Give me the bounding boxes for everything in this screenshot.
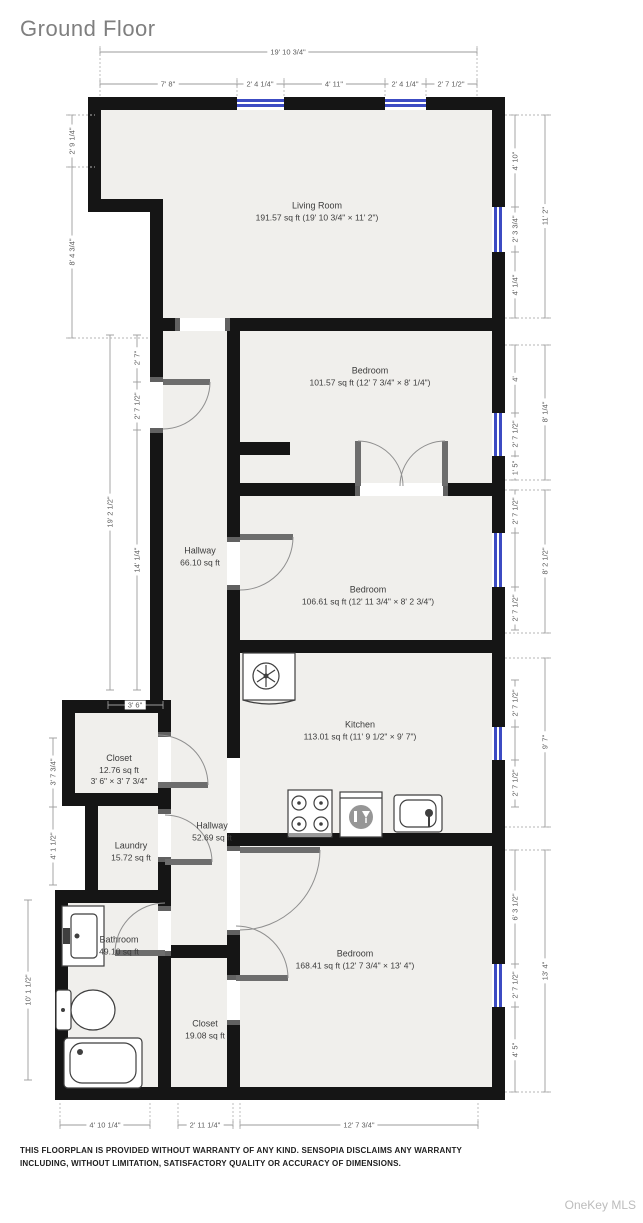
dimension-label: 2' 11 1/4" [187,1121,224,1130]
dimension-label: 2' 9 1/4" [68,124,77,157]
room-label-closet-1: Closet 12.76 sq ft 3' 6" × 3' 7 3/4" [91,753,148,787]
dimension-label: 13' 4" [541,959,550,984]
dimension-label: 2' 3 3/4" [511,212,520,245]
dimension-label: 8' 2 1/2" [541,544,550,577]
room-detail: 106.61 sq ft (12' 11 3/4" × 8' 2 3/4") [302,596,434,607]
dimension-label: 2' 7 1/2" [511,494,520,527]
room-name: Hallway [192,821,232,833]
dimension-label: 8' 1/4" [541,399,550,426]
dimension-label: 4' 5" [511,1040,520,1061]
dimension-label: 4' 1 1/2" [49,829,58,862]
room-detail-2: 3' 6" × 3' 7 3/4" [91,776,148,787]
toilet [56,990,115,1030]
disclaimer-line-2: INCLUDING, WITHOUT LIMITATION, SATISFACT… [20,1157,462,1170]
room-detail: 191.57 sq ft (19' 10 3/4" × 11' 2") [256,212,379,223]
dimension-label: 9' 7" [541,732,550,753]
dishwasher [340,792,382,837]
room-detail: 52.69 sq ft [192,832,232,843]
dimension-label: 4' 10" [511,149,520,174]
floorplan-page: Ground Floor [0,0,643,1223]
room-label-closet-2: Closet 19.08 sq ft [185,1019,225,1042]
room-name: Bedroom [302,585,434,597]
dimension-label: 8' 4 3/4" [68,235,77,268]
dimension-label: 19' 10 3/4" [267,48,308,57]
dimension-label: 12' 7 3/4" [340,1121,377,1130]
room-detail: 19.08 sq ft [185,1030,225,1041]
dimension-label: 2' 7 1/2" [511,968,520,1001]
floorplan-drawing [0,0,643,1223]
room-name: Closet [91,753,148,765]
room-detail: 113.01 sq ft (11' 9 1/2" × 9' 7") [304,731,417,742]
room-name: Kitchen [304,720,417,732]
dimension-label: 2' 7 1/2" [511,766,520,799]
dimension-label: 2' 7" [133,348,142,369]
disclaimer-line-1: THIS FLOORPLAN IS PROVIDED WITHOUT WARRA… [20,1144,462,1157]
refrigerator [243,653,295,704]
room-name: Laundry [111,841,151,853]
room-name: Bathroom [99,935,139,947]
dimension-label: 2' 7 1/2" [511,686,520,719]
kitchen-sink [394,795,442,832]
bathtub [64,1038,142,1088]
room-detail: 168.41 sq ft (12' 7 3/4" × 13' 4") [296,960,415,971]
dimension-label: 3' 6" [125,701,146,710]
dimension-label: 2' 4 1/4" [388,80,421,89]
disclaimer: THIS FLOORPLAN IS PROVIDED WITHOUT WARRA… [20,1144,462,1170]
room-label-laundry: Laundry 15.72 sq ft [111,841,151,864]
room-detail: 66.10 sq ft [180,557,220,568]
dimension-label: 10' 1 1/2" [24,971,33,1008]
dimension-label: 2' 7 1/2" [511,591,520,624]
stove [288,790,332,837]
dimension-label: 2' 7 1/2" [133,389,142,422]
room-label-bedroom-3: Bedroom 168.41 sq ft (12' 7 3/4" × 13' 4… [296,949,415,972]
room-detail: 49.10 sq ft [99,946,139,957]
bathroom-vanity [62,906,104,966]
dimension-label: 2' 7 1/2" [434,80,467,89]
dimension-label: 7' 8" [158,80,179,89]
dimension-label: 4' 10 1/4" [86,1121,123,1130]
dimension-label: 11' 2" [541,204,550,228]
watermark: OneKey MLS [565,1198,636,1212]
room-name: Bedroom [309,366,430,378]
dimension-label: 4' [511,373,520,385]
dimension-label: 4' 1/4" [511,272,520,299]
dimension-label: 2' 7 1/2" [511,417,520,450]
room-detail: 15.72 sq ft [111,852,151,863]
room-label-living-room: Living Room 191.57 sq ft (19' 10 3/4" × … [256,201,379,224]
dimension-label: 3' 7 3/4" [49,755,58,788]
room-label-hallway-1: Hallway 66.10 sq ft [180,546,220,569]
room-label-kitchen: Kitchen 113.01 sq ft (11' 9 1/2" × 9' 7"… [304,720,417,743]
dimension-label: 1' 5" [511,458,520,479]
dimension-label: 19' 2 1/2" [106,493,115,530]
dimension-label: 4' 11" [322,80,346,89]
room-name: Hallway [180,546,220,558]
room-detail: 12.76 sq ft [91,765,148,776]
room-label-hallway-2: Hallway 52.69 sq ft [192,821,232,844]
room-label-bedroom-1: Bedroom 101.57 sq ft (12' 7 3/4" × 8' 1/… [309,366,430,389]
room-name: Closet [185,1019,225,1031]
room-name: Living Room [256,201,379,213]
room-label-bathroom: Bathroom 49.10 sq ft [99,935,139,958]
room-name: Bedroom [296,949,415,961]
dimension-label: 2' 4 1/4" [243,80,276,89]
dimension-label: 14' 1/4" [133,545,142,576]
room-label-bedroom-2: Bedroom 106.61 sq ft (12' 11 3/4" × 8' 2… [302,585,434,608]
dimension-label: 6' 3 1/2" [511,890,520,923]
room-detail: 101.57 sq ft (12' 7 3/4" × 8' 1/4") [309,377,430,388]
